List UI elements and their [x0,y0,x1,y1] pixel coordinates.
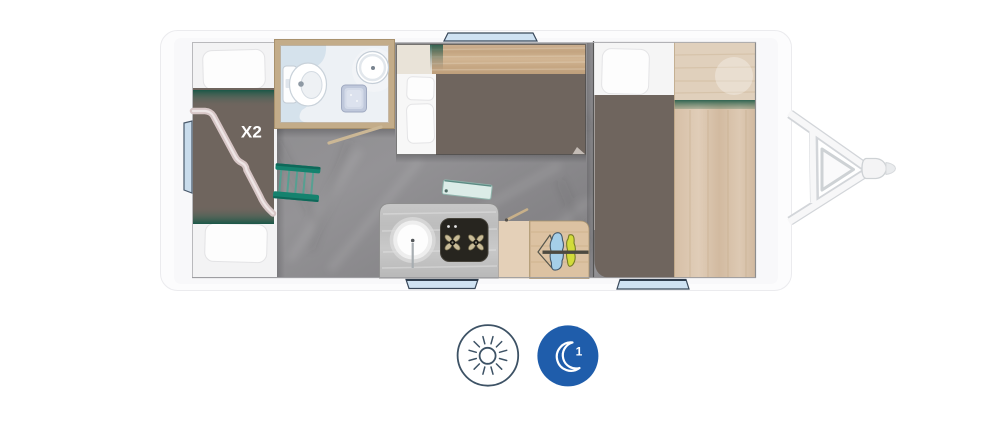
svg-text:X2: X2 [241,123,262,142]
svg-text:1: 1 [576,345,583,359]
